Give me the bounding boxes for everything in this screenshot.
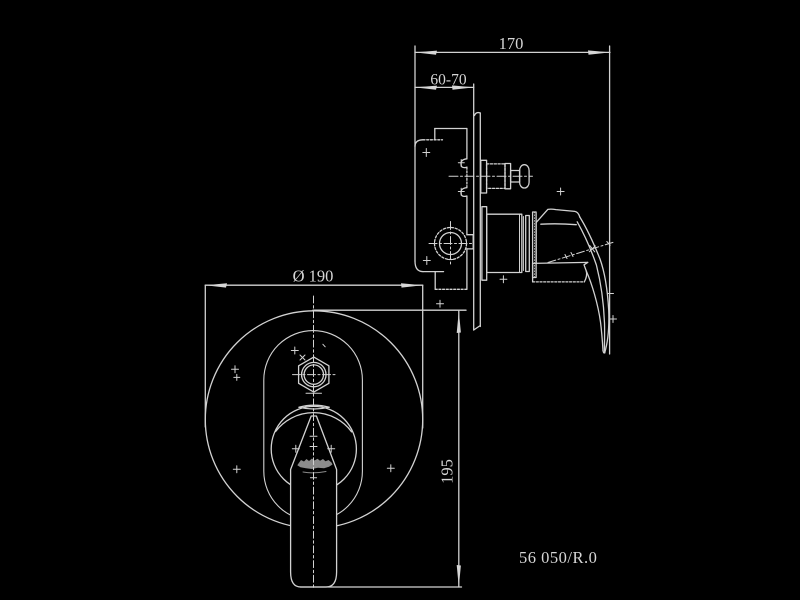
svg-text:Ø 190: Ø 190: [293, 267, 334, 286]
svg-text:56 050/R.0: 56 050/R.0: [519, 548, 597, 567]
svg-text:170: 170: [499, 34, 524, 53]
svg-text:195: 195: [438, 459, 457, 484]
svg-text:60-70: 60-70: [430, 72, 466, 89]
